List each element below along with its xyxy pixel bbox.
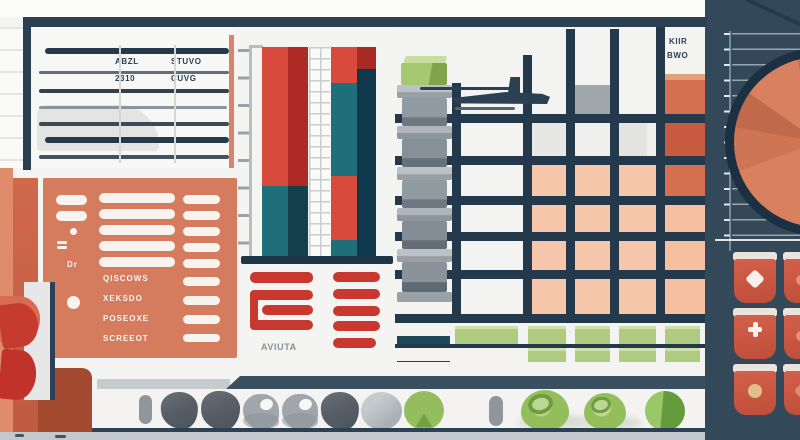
grid-cell-salmon [663, 80, 705, 114]
block-gray [397, 167, 452, 180]
grid-cell-lightgray [619, 123, 656, 156]
grid-cell-pink [575, 165, 610, 196]
toolbar-olive-icon[interactable] [584, 393, 626, 430]
top-white-margin [0, 0, 705, 17]
grid-cell-pink [663, 205, 705, 232]
progress-green-segment [528, 348, 566, 362]
cup-button[interactable] [784, 308, 800, 359]
form-row-bar [99, 241, 175, 251]
bar2-red-top [331, 47, 357, 83]
grid-cell-pink [619, 279, 656, 314]
table-rule-2 [39, 89, 229, 93]
progress-green-segment [455, 326, 518, 344]
grid-cell-pink [619, 165, 656, 196]
grid-cell-gray [569, 85, 610, 114]
block-gray [402, 180, 447, 208]
left-navy-border [23, 17, 31, 170]
dashboard-illustration: ABZL STUVO 2310 CUVG Dr QISCOWS XEKSDO P… [0, 0, 800, 440]
bar1-shadow-red [288, 47, 308, 186]
bar1-shadow-teal [288, 186, 308, 256]
grid-cell-pink [575, 279, 610, 314]
red-list-bar [333, 338, 376, 348]
form-dr-label: Dr [67, 260, 78, 269]
bar-chart-axis-corner [249, 45, 263, 48]
icon-shade [243, 413, 279, 429]
table-rule-thick-1 [45, 48, 229, 54]
form-row-text: QISCOWS [103, 274, 149, 283]
grid-cell-pink [532, 205, 566, 232]
form-row-bar [99, 225, 175, 235]
block-gray [397, 126, 452, 139]
grid-cell-pink [619, 241, 656, 270]
form-field [56, 195, 87, 205]
form-row-bar [99, 209, 175, 219]
grid-corner-text: KIIR [669, 37, 687, 46]
cup-button[interactable] [734, 252, 776, 303]
toolbar-pill-handle[interactable] [139, 395, 152, 424]
grid-cell-pink [575, 205, 610, 232]
cup-button[interactable] [734, 308, 776, 359]
cross-icon [753, 322, 758, 337]
bar-chart-axis-ticks [238, 49, 249, 247]
toolbar-gray-edge [97, 379, 230, 389]
grid-cell-pink [532, 165, 566, 196]
progress-green-segment [619, 326, 656, 344]
bar2-teal-mid [331, 83, 357, 176]
toolbar-plain-icon[interactable] [361, 392, 402, 430]
grid-corner-text: BWO [667, 51, 688, 60]
cup-button[interactable] [734, 364, 776, 415]
form-value-bar [183, 195, 220, 204]
progress-green-segment [575, 348, 610, 362]
form-value-bar [183, 227, 220, 236]
grid-cell-pink [532, 241, 566, 270]
icon-notch [416, 413, 432, 427]
table-rule-3 [39, 106, 227, 109]
grid-cell-pink [663, 241, 705, 270]
table-column-divider [119, 45, 121, 163]
floor-line [0, 428, 705, 432]
form-row-text: POSEOXE [103, 314, 149, 323]
cup-button[interactable] [784, 252, 800, 303]
toolbar-gray-icon[interactable] [243, 394, 279, 429]
red-list-bar [333, 306, 380, 316]
progress-green-segment [619, 348, 656, 362]
form-value-bar [183, 296, 220, 305]
icon-highlight [259, 397, 275, 411]
block-stack-green-body [401, 63, 447, 85]
floor-dash [55, 435, 66, 438]
report-table-panel: ABZL STUVO 2310 CUVG [31, 27, 234, 168]
icon-highlight [298, 397, 314, 411]
block-gray [402, 221, 447, 249]
grid-cell-pink [619, 205, 656, 232]
icon-shade [282, 413, 318, 429]
red-bar-item [250, 272, 313, 283]
red-bracket-inner [262, 305, 313, 315]
top-navy-bar [23, 17, 707, 27]
dark-dash-line [420, 87, 520, 90]
form-row-bar [99, 257, 175, 267]
floor-dash [15, 434, 24, 437]
toolbar-olive-icon[interactable] [521, 390, 569, 431]
table-rule-4 [39, 122, 229, 126]
tiny-bar [57, 241, 67, 244]
form-value-bar [183, 334, 220, 342]
toolbar-navy-edge [226, 376, 705, 389]
block-gray [402, 98, 447, 126]
bar1-red-segment [262, 47, 288, 186]
progress-green-segment [575, 326, 610, 344]
progress-white-bar [397, 326, 450, 336]
red-list-bar [333, 272, 380, 282]
circle-icon [748, 384, 762, 398]
block-gray [397, 292, 452, 302]
form-value-bar [183, 243, 220, 252]
block-gray [397, 208, 452, 221]
block-gray [397, 249, 452, 262]
red-list-bar [333, 321, 380, 331]
grid-cell-lightgray [575, 123, 610, 156]
grid-cell-lightgray [532, 123, 566, 156]
tiny-bar [57, 246, 67, 249]
gridline-horizontal [395, 314, 705, 323]
pie-panel-divider [715, 239, 800, 241]
block-gray [402, 139, 447, 167]
form-panel: Dr QISCOWS XEKSDO POSEOXE SCREEOT [43, 178, 237, 358]
bar2-red-lower [331, 176, 357, 240]
red-list-bar [333, 289, 380, 299]
form-field [56, 211, 87, 221]
bar2-shadow-red [357, 47, 376, 69]
form-value-bar [183, 277, 220, 286]
table-rule-thick-2 [45, 137, 229, 143]
toolbar-pill-handle[interactable] [489, 396, 503, 426]
block-gray [402, 262, 447, 292]
bar2-shadow-navy [357, 69, 376, 256]
form-row-text: XEKSDO [103, 294, 143, 303]
toolbar-gray-icon[interactable] [282, 394, 318, 429]
table-column-divider [174, 45, 176, 163]
table-area-blob [37, 105, 159, 151]
grid-cell-red [663, 123, 705, 156]
form-value-bar [183, 259, 220, 268]
bar1-teal-segment [262, 186, 288, 256]
grid-cell-pink [663, 279, 705, 314]
grid-cell-pink [532, 279, 566, 314]
form-row-text: SCREEOT [103, 334, 149, 343]
red-bracket-bottom [250, 320, 313, 330]
bar2-teal-base [331, 240, 357, 256]
progress-green-segment [665, 326, 700, 344]
olive-ring [526, 391, 555, 416]
progress-green-segment [528, 326, 566, 344]
bar-chart-caption: AVIUTA [261, 342, 297, 352]
cup-button[interactable] [784, 364, 800, 415]
progress-white-segment [397, 348, 518, 361]
chart-mini-grid [309, 47, 330, 256]
toolbar-green-icon[interactable] [404, 391, 444, 430]
progress-green-segment [665, 348, 700, 362]
grid-cell-salmon [663, 165, 705, 196]
olive-ring [589, 395, 612, 415]
radio-dot[interactable] [70, 228, 77, 235]
form-row-bar [99, 193, 175, 203]
form-value-bar [183, 211, 220, 220]
bar-chart-baseline [241, 256, 393, 264]
radio-circle[interactable] [67, 296, 80, 309]
red-bracket-top [250, 290, 313, 300]
plane-underline [455, 107, 515, 110]
table-salmon-edge [229, 35, 234, 168]
table-rule-5 [39, 155, 229, 159]
form-value-bar [183, 315, 220, 324]
bar-chart-y-axis [249, 45, 252, 258]
toolbar-coin-icon[interactable] [645, 391, 685, 431]
background-page-edge [0, 27, 23, 168]
grid-cell-pink [575, 241, 610, 270]
